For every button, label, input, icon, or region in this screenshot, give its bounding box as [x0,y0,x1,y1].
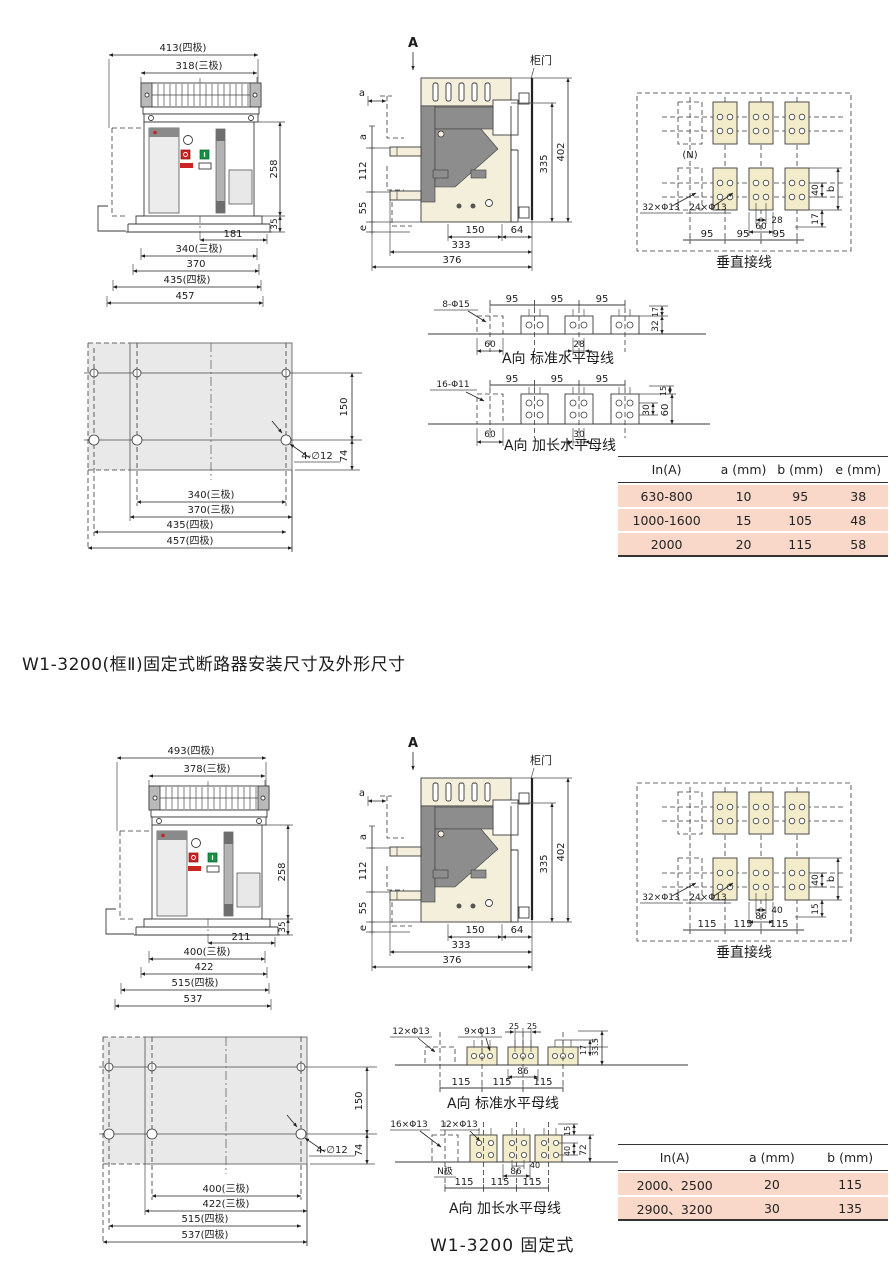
dim-label: 515(四极) [172,976,219,989]
diagram-caption: A向 加长水平母线 [504,438,616,454]
technical-drawings: 413(四极) 318(三极) 258 35 181 340(三极) 370 4… [0,0,896,1273]
table-cell: 48 [829,513,888,528]
standard-busbar-diagram-2: 12×Φ13 9×Φ13 25 25 17 33.5 86 115 115 11… [390,1022,688,1112]
dim-label: 150 [339,397,350,416]
dim-label: 370(三极) [188,503,235,516]
dim-label: 60 [484,430,496,440]
table-header-cell: a (mm) [731,1150,812,1165]
table-cell: 38 [829,489,888,504]
dim-label: 435(四极) [167,518,214,531]
dim-label: 64 [511,225,524,236]
dim-label: 211 [231,932,250,943]
hole-spec-label: 4-∅12 [301,451,332,462]
dim-label: 25 [509,1022,519,1031]
dim-label: 95 [596,294,609,305]
dim-label: 74 [354,1144,365,1157]
dim-label: 32 [651,320,661,331]
hole-spec-label: 16×Φ13 [390,1120,428,1130]
dim-label: 28 [573,340,585,350]
dim-label: 25 [527,1022,537,1031]
dim-label: 17 [579,1045,588,1055]
dim-label: 30 [642,404,652,416]
vertical-wiring-diagram-1 [637,93,851,251]
dim-label: 422 [194,962,213,973]
dim-label: 376 [442,255,461,266]
diagram-caption: A向 标准水平母线 [447,1096,559,1112]
dim-base-height: 35 [278,921,288,932]
table-row: 1000-1600 15 105 48 [618,509,888,531]
view-direction-label: A [408,736,418,751]
table-cell: 20 [715,537,772,552]
table-cell: 95 [772,489,829,504]
cabinet-door-label: 柜门 [530,753,552,767]
diagram-caption: 垂直接线 [716,944,772,961]
dim-label: 72 [579,1144,589,1155]
dim-label: e [358,225,369,231]
dim-label: 60 [660,404,671,417]
dim-label: 15 [659,386,668,396]
hole-spec-label: 24×Φ13 [689,893,727,903]
vertical-wiring-diagram-2 [637,783,851,941]
extended-busbar-diagram-1: 16-Φ11 95 95 95 15 30 60 60 30 A向 加长水平母线 [428,374,710,454]
dim-label: 115 [454,1177,473,1188]
dim-label: 400(三极) [184,945,231,958]
cabinet-door-label: 柜门 [530,53,552,67]
table-cell: 2000、2500 [618,1175,731,1194]
dim-label: 55 [358,202,369,215]
dim-label: 55 [358,902,369,915]
dim-label: 95 [701,229,714,240]
dim-label: 370 [186,259,205,270]
table-row: 2900、3200 30 135 [618,1197,888,1219]
dim-label: 333 [451,940,470,951]
table-header-cell: e (mm) [829,462,888,477]
table-header-cell: b (mm) [772,462,829,477]
table-header-cell: b (mm) [812,1150,888,1165]
table-cell: 105 [772,513,829,528]
dim-label: b [826,876,837,882]
dim-label: 115 [492,1077,511,1088]
dim-width-3pole: 318(三极) [176,59,223,72]
dim-width-3pole: 378(三极) [184,762,231,775]
table-cell: 135 [812,1201,888,1216]
hole-spec-label: 12×Φ13 [440,1120,478,1130]
dim-height: 258 [269,159,280,178]
table-row: 2000、2500 20 115 [618,1173,888,1195]
dim-height: 258 [277,862,288,881]
dim-label: 15 [563,1126,572,1136]
table-row: 630-800 10 95 38 [618,485,888,507]
dim-label: 15 [811,903,821,914]
neutral-pole-label: (N) [682,150,697,161]
dim-label: 435(四极) [164,273,211,286]
neutral-pole-label: N极 [437,1165,453,1177]
dim-label: a [359,788,365,799]
dim-label: 340(三极) [188,488,235,501]
dim-label: 112 [358,161,369,180]
dim-label: 537(四极) [182,1228,229,1241]
table-cell: 30 [731,1201,812,1216]
dim-label: 115 [451,1077,470,1088]
dim-label: 333 [451,240,470,251]
dim-label: 402 [556,142,567,161]
hole-spec-label: 24×Φ13 [689,203,727,213]
mounting-plan-1 [84,343,362,552]
dim-label: 537 [183,994,202,1005]
dim-label: e [358,925,369,931]
table-header-cell: In(A) [618,1150,731,1165]
dim-label: 115 [490,1177,509,1188]
spec-table-2: In(A) a (mm) b (mm) 2000、2500 20 115 290… [618,1144,888,1221]
dim-label: 150 [354,1091,365,1110]
dim-label: 335 [539,154,550,173]
diagram-caption: A向 加长水平母线 [449,1201,561,1217]
dim-label: 115 [769,919,788,930]
dim-label: 40 [530,1161,540,1170]
hole-spec-label: 16-Φ11 [436,380,469,390]
dim-label: 402 [556,842,567,861]
dim-label: 422(三极) [203,1197,250,1210]
dim-label: 74 [339,450,350,463]
dim-label: 150 [465,225,484,236]
table-cell: 630-800 [618,489,715,504]
table-cell: 10 [715,489,772,504]
dim-label: 40 [771,906,783,916]
dim-label: a [358,134,369,140]
spec-table-1: In(A) a (mm) b (mm) e (mm) 630-800 10 95… [618,456,888,557]
dim-label: 95 [506,374,519,385]
dim-label: b [826,186,837,192]
dim-label: 400(三极) [203,1182,250,1195]
hole-spec-label: 4-∅12 [316,1145,347,1156]
table-header-row: In(A) a (mm) b (mm) e (mm) [618,456,888,483]
dim-label: 515(四极) [182,1212,229,1225]
dim-label: 95 [773,229,786,240]
standard-busbar-diagram-1: 8-Φ15 95 95 95 17 32 60 28 A向 标准水平母线 [428,294,706,367]
hole-spec-label: 12×Φ13 [392,1027,430,1037]
dim-label: 64 [511,925,524,936]
dim-label: 33.5 [591,1038,600,1056]
table-cell: 115 [772,537,829,552]
dim-label: 95 [737,229,750,240]
table-header-cell: a (mm) [715,462,772,477]
table-cell: 2900、3200 [618,1199,731,1218]
dim-label: 17 [651,307,660,317]
hole-spec-label: 32×Φ13 [642,203,680,213]
diagram-caption: A向 标准水平母线 [502,351,614,367]
table-row: 2000 20 115 58 [618,533,888,555]
table-cell: 2000 [618,537,715,552]
dim-label: 86 [517,1067,529,1077]
view-direction-label: A [408,36,418,51]
section-title: W1-3200(框Ⅱ)固定式断路器安装尺寸及外形尺寸 [22,650,406,675]
dim-label: 95 [551,294,564,305]
dim-label: 60 [755,222,767,232]
dim-label: 28 [771,216,783,226]
mounting-plan-2 [99,1037,377,1246]
dim-base-height: 35 [270,218,280,229]
diagram-caption: 垂直接线 [716,254,772,271]
dim-label: 95 [551,374,564,385]
table-cell: 58 [829,537,888,552]
dim-label: 17 [811,213,821,224]
dim-width-4pole: 413(四极) [160,41,207,54]
dim-label: 40 [563,1146,572,1156]
hole-spec-label: 8-Φ15 [442,300,470,310]
dim-label: 86 [510,1167,522,1177]
dim-label: 457(四极) [167,534,214,547]
catalog-page: 413(四极) 318(三极) 258 35 181 340(三极) 370 4… [0,0,896,1273]
dim-label: 457 [175,291,194,302]
table-header-row: In(A) a (mm) b (mm) [618,1144,888,1171]
dim-label: 40 [811,874,821,886]
dim-label: 115 [733,919,752,930]
dim-label: 376 [442,955,461,966]
table-cell: 1000-1600 [618,513,715,528]
table-cell: 20 [731,1177,812,1192]
dim-label: 95 [596,374,609,385]
dim-label: 181 [223,229,242,240]
table-cell: 15 [715,513,772,528]
table-header-cell: In(A) [618,462,715,477]
hole-spec-label: 32×Φ13 [642,893,680,903]
dim-label: a [359,88,365,99]
dim-label: 335 [539,854,550,873]
hole-spec-label: 9×Φ13 [464,1027,496,1037]
dim-label: 115 [697,919,716,930]
dim-label: 40 [811,184,821,196]
dim-label: a [358,834,369,840]
dim-label: 340(三极) [176,242,223,255]
dim-label: 86 [755,912,767,922]
dim-label: 115 [533,1077,552,1088]
dim-label: 150 [465,925,484,936]
dim-label: 60 [484,340,496,350]
dim-label: 112 [358,861,369,880]
dim-width-4pole: 493(四极) [168,744,215,757]
table-cell: 115 [812,1177,888,1192]
figure-caption: W1-3200 固定式 [430,1231,574,1256]
dim-label: 95 [506,294,519,305]
dim-label: 115 [522,1177,541,1188]
